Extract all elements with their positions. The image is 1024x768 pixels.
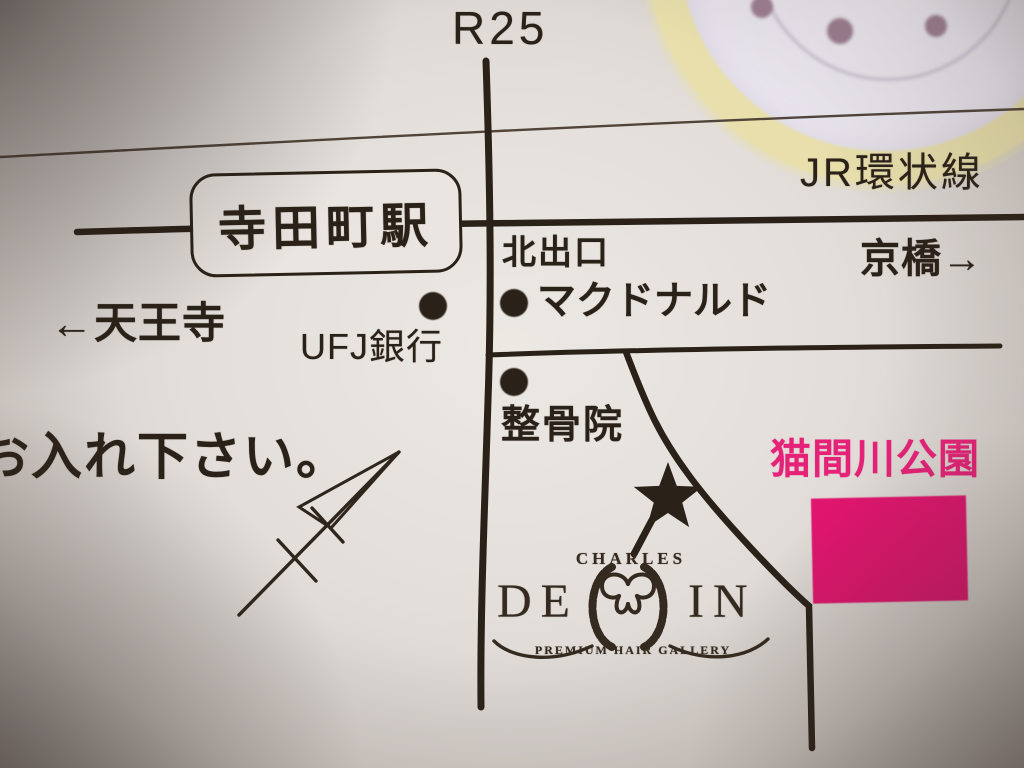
clinic-label: 整骨院 xyxy=(501,406,624,447)
salon-access-map-photo: 寺田町駅 R25 JR環状線 京橋→ 北出口 マクドナルド ←天王寺 UFJ銀行… xyxy=(0,0,1024,768)
monogram-icon xyxy=(602,574,654,612)
map-border-line xyxy=(0,109,1024,157)
tennoji-direction-label: ←天王寺 xyxy=(50,302,226,347)
route25-label: R25 xyxy=(452,4,548,52)
north-exit-label: 北出口 xyxy=(502,236,610,272)
park-area-block xyxy=(811,495,968,603)
ufj-bank-dot-icon xyxy=(419,292,447,320)
route25-road xyxy=(481,61,490,707)
logo-tagline: PREMIUM HAIR GALLERY xyxy=(530,643,736,658)
jr-line-label: JR環状線 xyxy=(800,152,984,194)
kyobashi-direction-label: 京橋→ xyxy=(860,238,983,280)
logo-charles: CHARLES xyxy=(558,549,704,569)
handwriting-note: お入れ下さい。 xyxy=(0,430,349,484)
station-box: 寺田町駅 xyxy=(189,168,463,278)
star-location-icon xyxy=(623,454,706,554)
mcdonalds-label: マクドナルド xyxy=(537,282,771,323)
clinic-dot-icon xyxy=(500,368,528,396)
north-road xyxy=(488,346,1000,355)
mcdonalds-dot-icon xyxy=(500,289,528,317)
logo-in: IN xyxy=(688,574,757,629)
park-label: 猫間川公園 xyxy=(770,438,980,481)
ufj-bank-label: UFJ銀行 xyxy=(300,328,443,366)
logo-de: DE xyxy=(497,574,579,629)
station-label: 寺田町駅 xyxy=(217,186,434,261)
